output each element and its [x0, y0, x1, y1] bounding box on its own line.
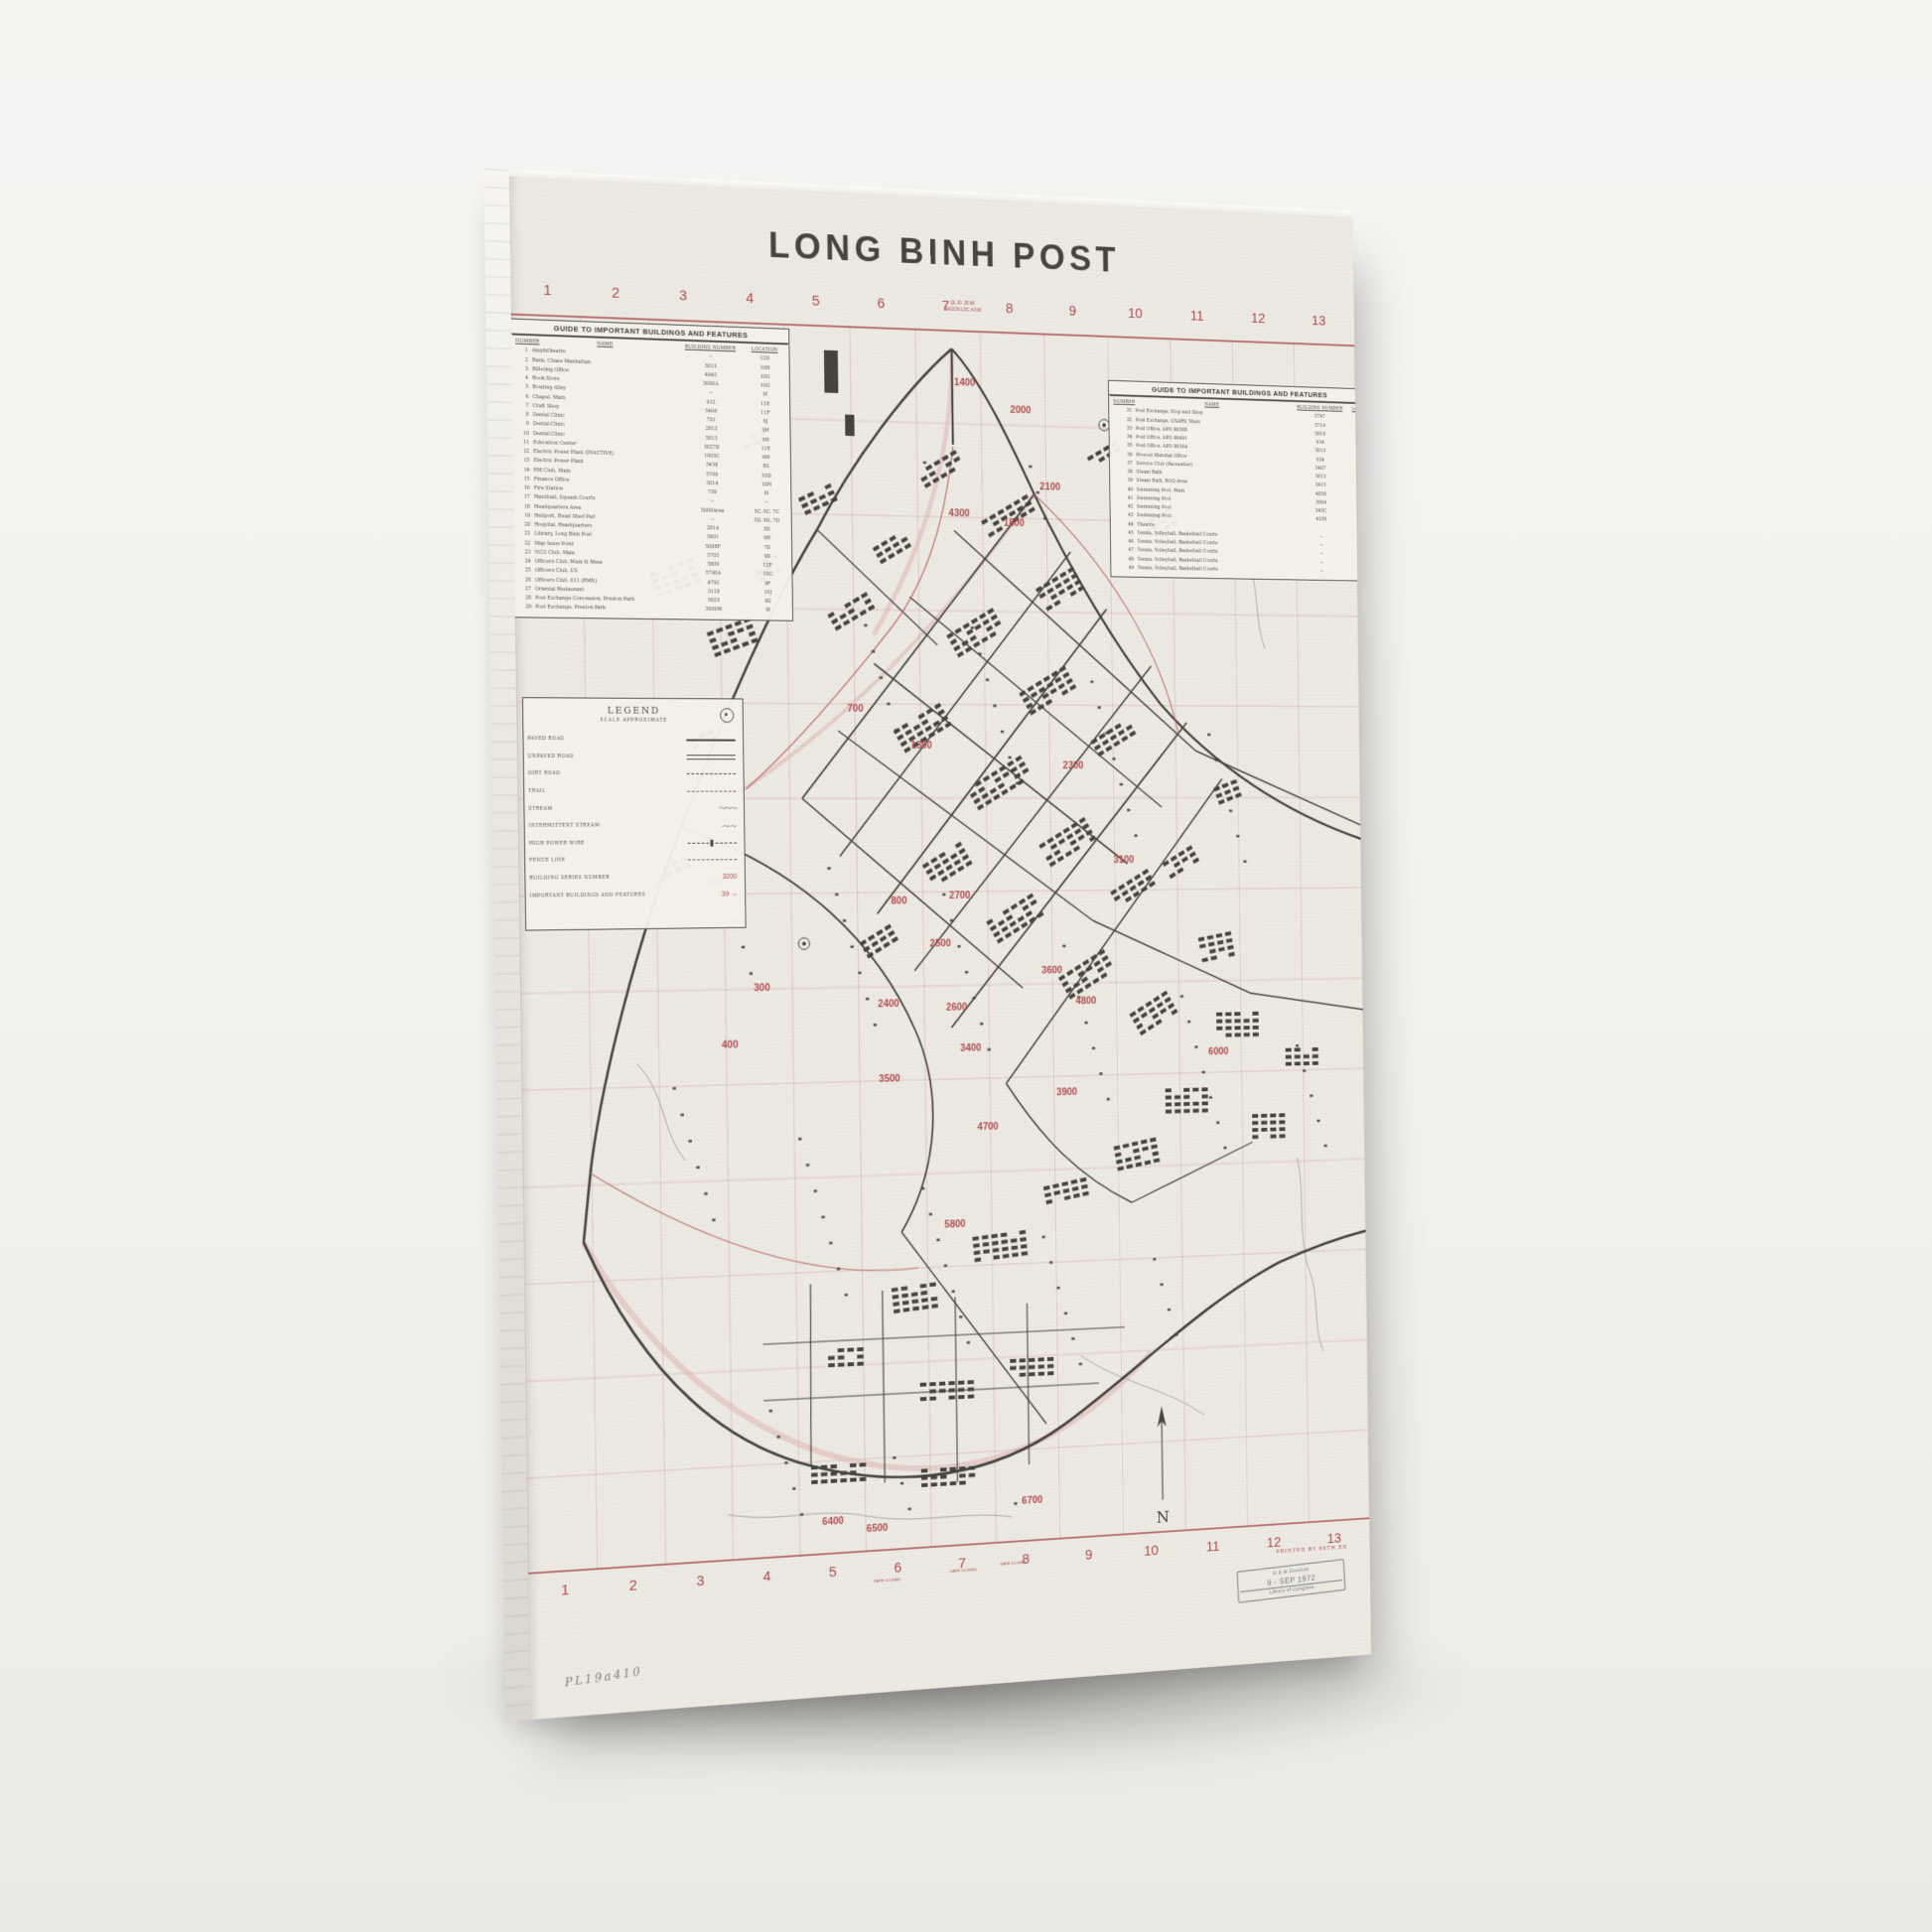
- legend-label: INTERMITTENT STREAM: [529, 824, 600, 829]
- cell: 10: [516, 429, 533, 439]
- legend-item: BUILDING SERIES NUMBER3200: [525, 869, 745, 888]
- cell: [1353, 551, 1370, 560]
- cell: [1353, 499, 1370, 508]
- series-number-label: 400: [722, 1039, 739, 1050]
- cell: [1354, 560, 1371, 569]
- guide-table-left: GUIDE TO IMPORTANT BUILDINGS AND FEATURE…: [511, 319, 793, 621]
- dashbar-symbol-icon: [682, 842, 737, 843]
- red-arrow-symbol-icon: 39 →: [683, 891, 738, 897]
- red-number-symbol-icon: 3200: [682, 874, 737, 881]
- solid-symbol-icon: [681, 739, 736, 741]
- pencil-inscription: PL19a410: [564, 1664, 642, 1689]
- legend-label: HIGH POWER WIRE: [529, 841, 585, 846]
- series-number-label: 800: [891, 897, 906, 907]
- series-number-label: 700: [847, 704, 864, 715]
- cell: --: [1290, 567, 1354, 577]
- series-number-label: 3900: [1056, 1087, 1077, 1098]
- legend-item: IMPORTANT BUILDINGS AND FEATURES39 →: [526, 886, 746, 905]
- legend-item-list: PAVED ROADUNPAVED ROADDIRT ROADTRAILSTRE…: [523, 731, 745, 905]
- cell: 18: [517, 502, 534, 512]
- cell: [1353, 534, 1370, 543]
- cell: [1353, 508, 1370, 517]
- cell: 4: [516, 374, 533, 384]
- map-title: LONG BINH POST: [509, 213, 1353, 291]
- legend-item: STREAM〜〜〜: [524, 800, 744, 818]
- cell: 29: [519, 604, 536, 613]
- legend-label: DIRT ROAD: [528, 771, 561, 776]
- grid-number: 2: [606, 284, 624, 302]
- series-number-label: 2400: [878, 999, 899, 1010]
- series-number-label: 2700: [949, 891, 971, 901]
- cell: 20: [518, 520, 535, 530]
- series-number-label: 2600: [946, 1003, 968, 1014]
- cell: 3: [515, 364, 532, 374]
- grid-number: 12: [1249, 310, 1266, 327]
- cell: 14: [517, 466, 534, 476]
- cell: [1354, 568, 1371, 577]
- series-number-label: 2500: [930, 938, 952, 949]
- cell: Tennis, Volleyball, Basketball Courts: [1138, 564, 1290, 575]
- cell: 7: [516, 401, 533, 411]
- wavy-symbol-icon: 〜〜〜: [681, 804, 736, 814]
- cell: [1353, 525, 1370, 534]
- series-number-label: 4800: [1075, 996, 1096, 1007]
- grid-number: 11: [1204, 1538, 1222, 1555]
- legend-label: TRAIL: [528, 789, 545, 794]
- series-number-label: 6700: [1022, 1495, 1042, 1507]
- legend-label: UNPAVED ROAD: [528, 755, 574, 759]
- grid-number: 9: [1080, 1547, 1098, 1564]
- guide-rows: 1Amphitheatre--12D2Bank, Chase Manhattan…: [511, 346, 792, 620]
- series-number-label: 4300: [948, 508, 970, 519]
- series-number-label: 1400: [954, 377, 976, 388]
- legend-label: PAVED ROAD: [527, 737, 564, 742]
- cell: 5: [516, 383, 533, 393]
- canvas-top-edge: [509, 170, 1353, 217]
- map-face: LONG BINH POST 12345678910111213 QL 20 .…: [509, 170, 1371, 1721]
- grid-number: 1: [538, 282, 558, 300]
- series-number-label: 3100: [1114, 855, 1135, 866]
- legend-item: UNPAVED ROAD: [524, 749, 744, 766]
- compass-north-label: N: [1157, 1507, 1171, 1527]
- legend-item: HIGH POWER WIRE: [525, 834, 745, 853]
- grid-number: 9: [1063, 303, 1081, 320]
- series-number-label: 6400: [822, 1516, 844, 1528]
- cell: 15: [517, 475, 534, 484]
- cell: 16: [517, 483, 534, 493]
- cell: [1352, 474, 1369, 483]
- grid-number: 10: [1126, 305, 1144, 322]
- series-number-label: 2300: [1063, 760, 1084, 771]
- cell: 19: [517, 511, 534, 521]
- grid-number: 2: [623, 1577, 642, 1594]
- grid-number: 13: [1311, 313, 1327, 330]
- series-number-label: 3600: [1041, 965, 1062, 976]
- cell: Post Exchange, Preston Park: [535, 604, 681, 615]
- series-number-label: 300: [754, 983, 770, 994]
- grid-number: 6: [872, 295, 891, 312]
- series-number-label: 1300: [911, 741, 933, 752]
- canvas-print: LONG BINH POST 12345678910111213 QL 20 .…: [483, 168, 1371, 1722]
- grid-number: 4: [758, 1568, 776, 1586]
- grid-number: 8: [1017, 1551, 1035, 1568]
- finedash-symbol-icon: [681, 791, 736, 792]
- cell: 25: [518, 567, 535, 577]
- cell: 17: [517, 493, 534, 503]
- series-number-label: 2000: [1010, 405, 1031, 416]
- grid-number: 5: [806, 293, 825, 310]
- grid-number: 11: [1188, 308, 1206, 325]
- grid-number: 5: [823, 1564, 842, 1582]
- cell: [1353, 517, 1370, 526]
- grid-number: 1: [556, 1582, 576, 1599]
- cell: 26: [518, 576, 535, 585]
- cell: 23: [518, 548, 535, 558]
- legend-item: INTERMITTENT STREAM‐〜‐〜: [525, 817, 745, 835]
- cell: 9I: [747, 607, 789, 617]
- cell: 12: [517, 448, 534, 458]
- legend-item: TRAIL: [524, 783, 744, 801]
- series-number-label: 3500: [879, 1074, 900, 1085]
- legend-box: LEGEND SCALE APPROXIMATE PAVED ROADUNPAV…: [522, 697, 747, 930]
- cell: [1353, 542, 1370, 551]
- series-number-label: 6000: [1208, 1046, 1229, 1057]
- legend-subtitle: SCALE APPROXIMATE: [523, 718, 743, 724]
- legend-item: PAVED ROAD: [523, 731, 743, 749]
- dashwavy-symbol-icon: ‐〜‐〜: [682, 821, 737, 830]
- helipad-icon: [720, 708, 734, 723]
- legend-label: IMPORTANT BUILDINGS AND FEATURES: [530, 893, 646, 898]
- distance-note: QL 20 .25 MI SAIGON LOC 43 MI: [944, 300, 982, 315]
- legend-item: FENCE LINE: [525, 851, 745, 870]
- cell: 21: [518, 530, 535, 540]
- cell: 46: [1114, 537, 1137, 546]
- grid-number: 3: [691, 1573, 710, 1590]
- cell: 22: [518, 539, 535, 549]
- cell: 28: [519, 594, 536, 603]
- cell: 48: [1115, 555, 1138, 564]
- grid-number: 4: [741, 290, 759, 307]
- cell: 47: [1115, 546, 1138, 555]
- gate-closed-label: GATE CLOSED: [872, 1577, 902, 1584]
- cell: 13: [517, 457, 534, 467]
- cell: 49: [1115, 564, 1138, 573]
- cell: [1353, 491, 1370, 500]
- cell: 45: [1114, 529, 1137, 538]
- cell: 9: [516, 420, 533, 430]
- legend-item: DIRT ROAD: [524, 765, 744, 783]
- guide-table-right: GUIDE TO IMPORTANT BUILDINGS AND FEATURE…: [1108, 380, 1371, 582]
- cell: 8: [516, 411, 533, 421]
- grid-number: 8: [1001, 300, 1019, 317]
- legend-label: FENCE LINE: [529, 859, 566, 864]
- cell: 11: [516, 438, 533, 448]
- guide-rows: 31Post Exchange, Stop and Shop574732Post…: [1109, 407, 1371, 581]
- series-number-label: 6500: [867, 1523, 889, 1535]
- cell: [1353, 483, 1370, 491]
- series-number-label: 1800: [1004, 518, 1025, 529]
- grid-number: 3: [674, 287, 693, 304]
- product-photo-background: LONG BINH POST 12345678910111213 QL 20 .…: [0, 0, 1932, 1932]
- distance-note-line2: SAIGON LOC 43 MI: [944, 307, 982, 315]
- legend-label: STREAM: [528, 806, 552, 811]
- series-number-label: 4700: [978, 1122, 999, 1133]
- dash-symbol-icon: [681, 773, 736, 774]
- finedash-symbol-icon: [682, 860, 737, 861]
- cell: 27: [518, 585, 535, 594]
- legend-label: BUILDING SERIES NUMBER: [529, 876, 610, 882]
- grid-number: 10: [1143, 1542, 1161, 1559]
- library-of-congress-stamp: G & M Division 9 - SEP 1972 Library of C…: [1237, 1559, 1346, 1602]
- cell: 6: [516, 392, 533, 402]
- series-number-label: 2100: [1039, 482, 1060, 492]
- double-symbol-icon: [681, 755, 736, 759]
- cell: 3000M: [681, 606, 747, 616]
- cell: 24: [518, 557, 535, 567]
- series-number-label: 3400: [960, 1043, 981, 1054]
- series-number-label: 5800: [944, 1219, 966, 1230]
- grid-number: 6: [889, 1559, 907, 1577]
- legend-title: LEGEND: [523, 705, 743, 717]
- grid-number: 7: [953, 1555, 971, 1573]
